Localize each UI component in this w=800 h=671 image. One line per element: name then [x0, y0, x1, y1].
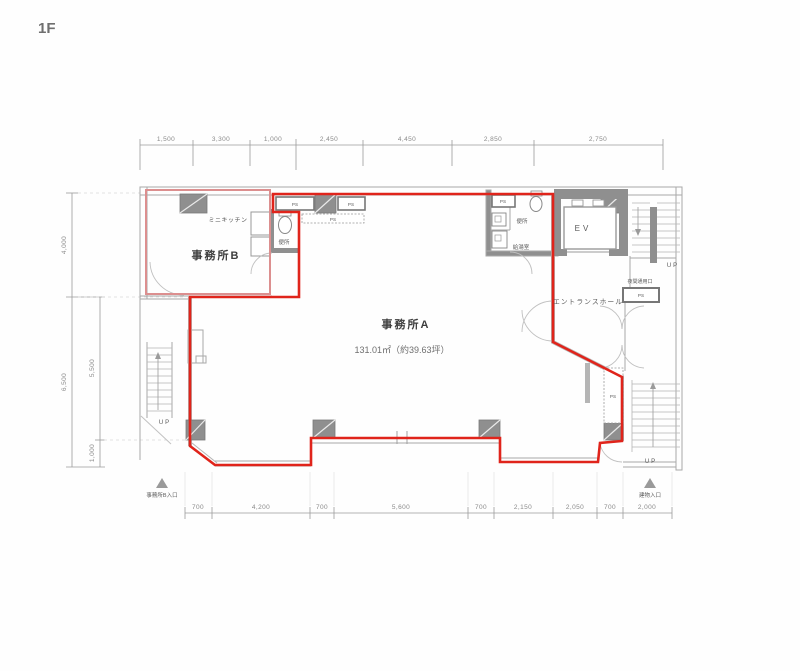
dim-left-inner-1: 5,500 [89, 359, 96, 377]
stairs-bottom-right-up-label: UP [645, 459, 657, 465]
toilet-a-label: 便所 [516, 217, 528, 225]
dim-bottom-6: 2,150 [514, 504, 532, 511]
building-entrance-label: 建物入口 [639, 491, 661, 499]
night-door-label: 夜間通用口 [627, 278, 652, 285]
stairs-top-right: UP [632, 203, 680, 269]
stairs-left-up-label: UP [159, 420, 171, 426]
dim-bottom-5: 700 [475, 504, 487, 511]
stairs-left: UP [147, 348, 172, 426]
dim-left-inner-2: 1,000 [89, 444, 96, 462]
dim-bottom-9: 2,000 [638, 504, 656, 511]
building-entrance-arrow [644, 478, 656, 488]
toilet-b: 便所 [269, 209, 300, 253]
dim-top-5: 4,450 [398, 136, 416, 143]
dim-left-outer-1: 4,000 [61, 236, 68, 254]
toilet-b-label: 便所 [278, 238, 290, 246]
office-a-label: 事務所A [382, 317, 431, 331]
ps-label: PS [292, 202, 298, 207]
floorplan-drawing: 1F 1,500 3,300 1,000 2,450 4,450 2,850 2… [0, 0, 800, 671]
floor-title: 1F [38, 20, 56, 37]
office-b-entrance-label: 事務所B入口 [146, 491, 177, 499]
office-b-label: 事務所B [192, 248, 241, 262]
hot-water-label: 給湯室 [513, 243, 530, 251]
ps-label: PS [500, 199, 506, 204]
stairs-bottom-right: UP [632, 380, 680, 465]
dim-bottom-8: 700 [604, 504, 616, 511]
dim-bottom-2: 4,200 [252, 504, 270, 511]
door-arcs [150, 252, 644, 462]
top-dimension-labels: 1,500 3,300 1,000 2,450 4,450 2,850 2,75… [157, 136, 607, 143]
ps-label: PS [610, 394, 616, 399]
dim-bottom-3: 700 [316, 504, 328, 511]
dim-top-1: 1,500 [157, 136, 175, 143]
lower-right-block [585, 363, 590, 403]
entrance-hall-label: エントランスホール [553, 298, 623, 306]
elevator-label: EV [575, 224, 592, 233]
stairs-top-right-up-label: UP [667, 263, 679, 269]
dim-bottom-1: 700 [192, 504, 204, 511]
bottom-dimension-line [185, 472, 672, 519]
entrance-markers: 事務所B入口 建物入口 [146, 478, 661, 499]
dim-top-6: 2,850 [484, 136, 502, 143]
floorplan-page: 1F 1,500 3,300 1,000 2,450 4,450 2,850 2… [0, 0, 800, 671]
office-a-area: 131.01㎡（約39.63坪） [354, 344, 449, 355]
dim-top-3: 1,000 [264, 136, 282, 143]
mini-kitchen-label: ミニキッチン [208, 217, 247, 224]
room-labels: 事務所B 事務所A 131.01㎡（約39.63坪） エントランスホール 夜間通… [192, 248, 653, 355]
dim-top-7: 2,750 [589, 136, 607, 143]
dim-top-4: 2,450 [320, 136, 338, 143]
ps-label: PS [638, 293, 644, 298]
dim-bottom-4: 5,600 [392, 504, 410, 511]
top-dimension-line [140, 139, 663, 170]
dim-top-2: 3,300 [212, 136, 230, 143]
dim-left-outer-2: 6,500 [61, 373, 68, 391]
ps-label: PS [330, 217, 336, 222]
dim-bottom-7: 2,050 [566, 504, 584, 511]
office-b-entrance-arrow [156, 478, 168, 488]
ps-label: PS [348, 202, 354, 207]
left-dimension-labels: 4,000 6,500 5,500 1,000 [61, 236, 96, 462]
bottom-dimension-labels: 700 4,200 700 5,600 700 2,150 2,050 700 … [192, 504, 656, 511]
